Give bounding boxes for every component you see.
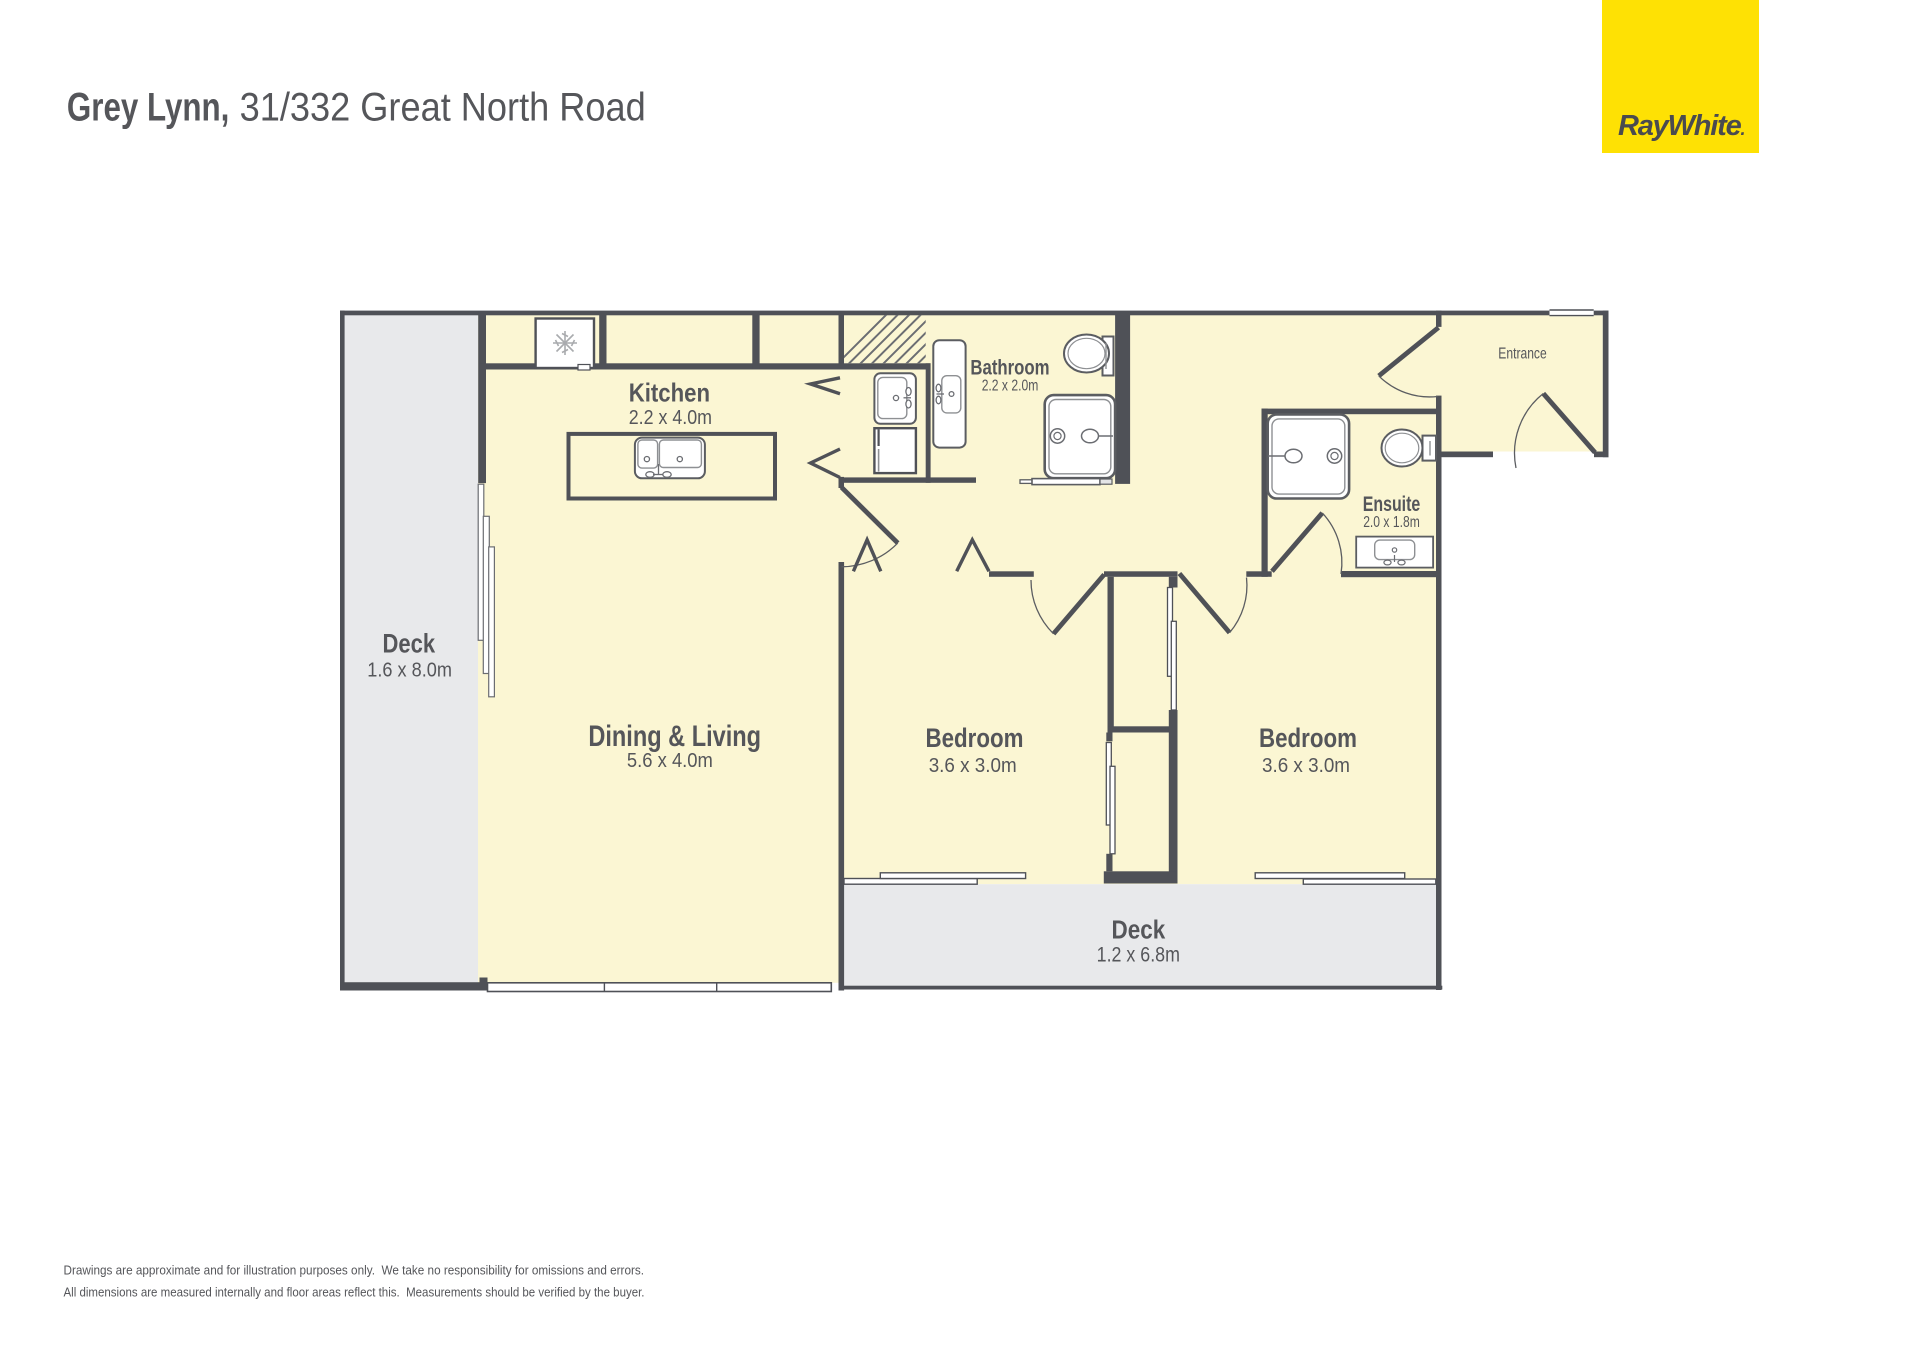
svg-text:2.0 x 1.8m: 2.0 x 1.8m [1363, 514, 1420, 531]
svg-text:All dimensions are measured in: All dimensions are measured internally a… [64, 1286, 645, 1300]
svg-text:Bedroom: Bedroom [926, 723, 1024, 753]
svg-text:2.2 x 4.0m: 2.2 x 4.0m [629, 407, 712, 429]
svg-text:3.6 x 3.0m: 3.6 x 3.0m [1262, 754, 1350, 777]
svg-text:Ensuite: Ensuite [1363, 493, 1421, 516]
svg-text:1.2 x 6.8m: 1.2 x 6.8m [1097, 944, 1180, 967]
svg-text:Entrance: Entrance [1498, 345, 1546, 362]
svg-text:Drawings are approximate and f: Drawings are approximate and for illustr… [64, 1264, 645, 1278]
svg-text:2.2 x 2.0m: 2.2 x 2.0m [982, 378, 1039, 395]
svg-text:5.6 x 4.0m: 5.6 x 4.0m [627, 749, 713, 772]
svg-text:Deck: Deck [383, 629, 436, 659]
svg-text:1.6 x 8.0m: 1.6 x 8.0m [367, 658, 452, 681]
svg-text:Kitchen: Kitchen [629, 377, 710, 407]
svg-text:31/332 Great North Road: 31/332 Great North Road [240, 86, 646, 130]
svg-text:Deck: Deck [1112, 915, 1166, 945]
svg-text:Bedroom: Bedroom [1259, 723, 1357, 753]
svg-text:Bathroom: Bathroom [970, 356, 1049, 379]
svg-text:Grey Lynn,: Grey Lynn, [67, 86, 230, 130]
svg-text:3.6 x 3.0m: 3.6 x 3.0m [929, 754, 1017, 777]
